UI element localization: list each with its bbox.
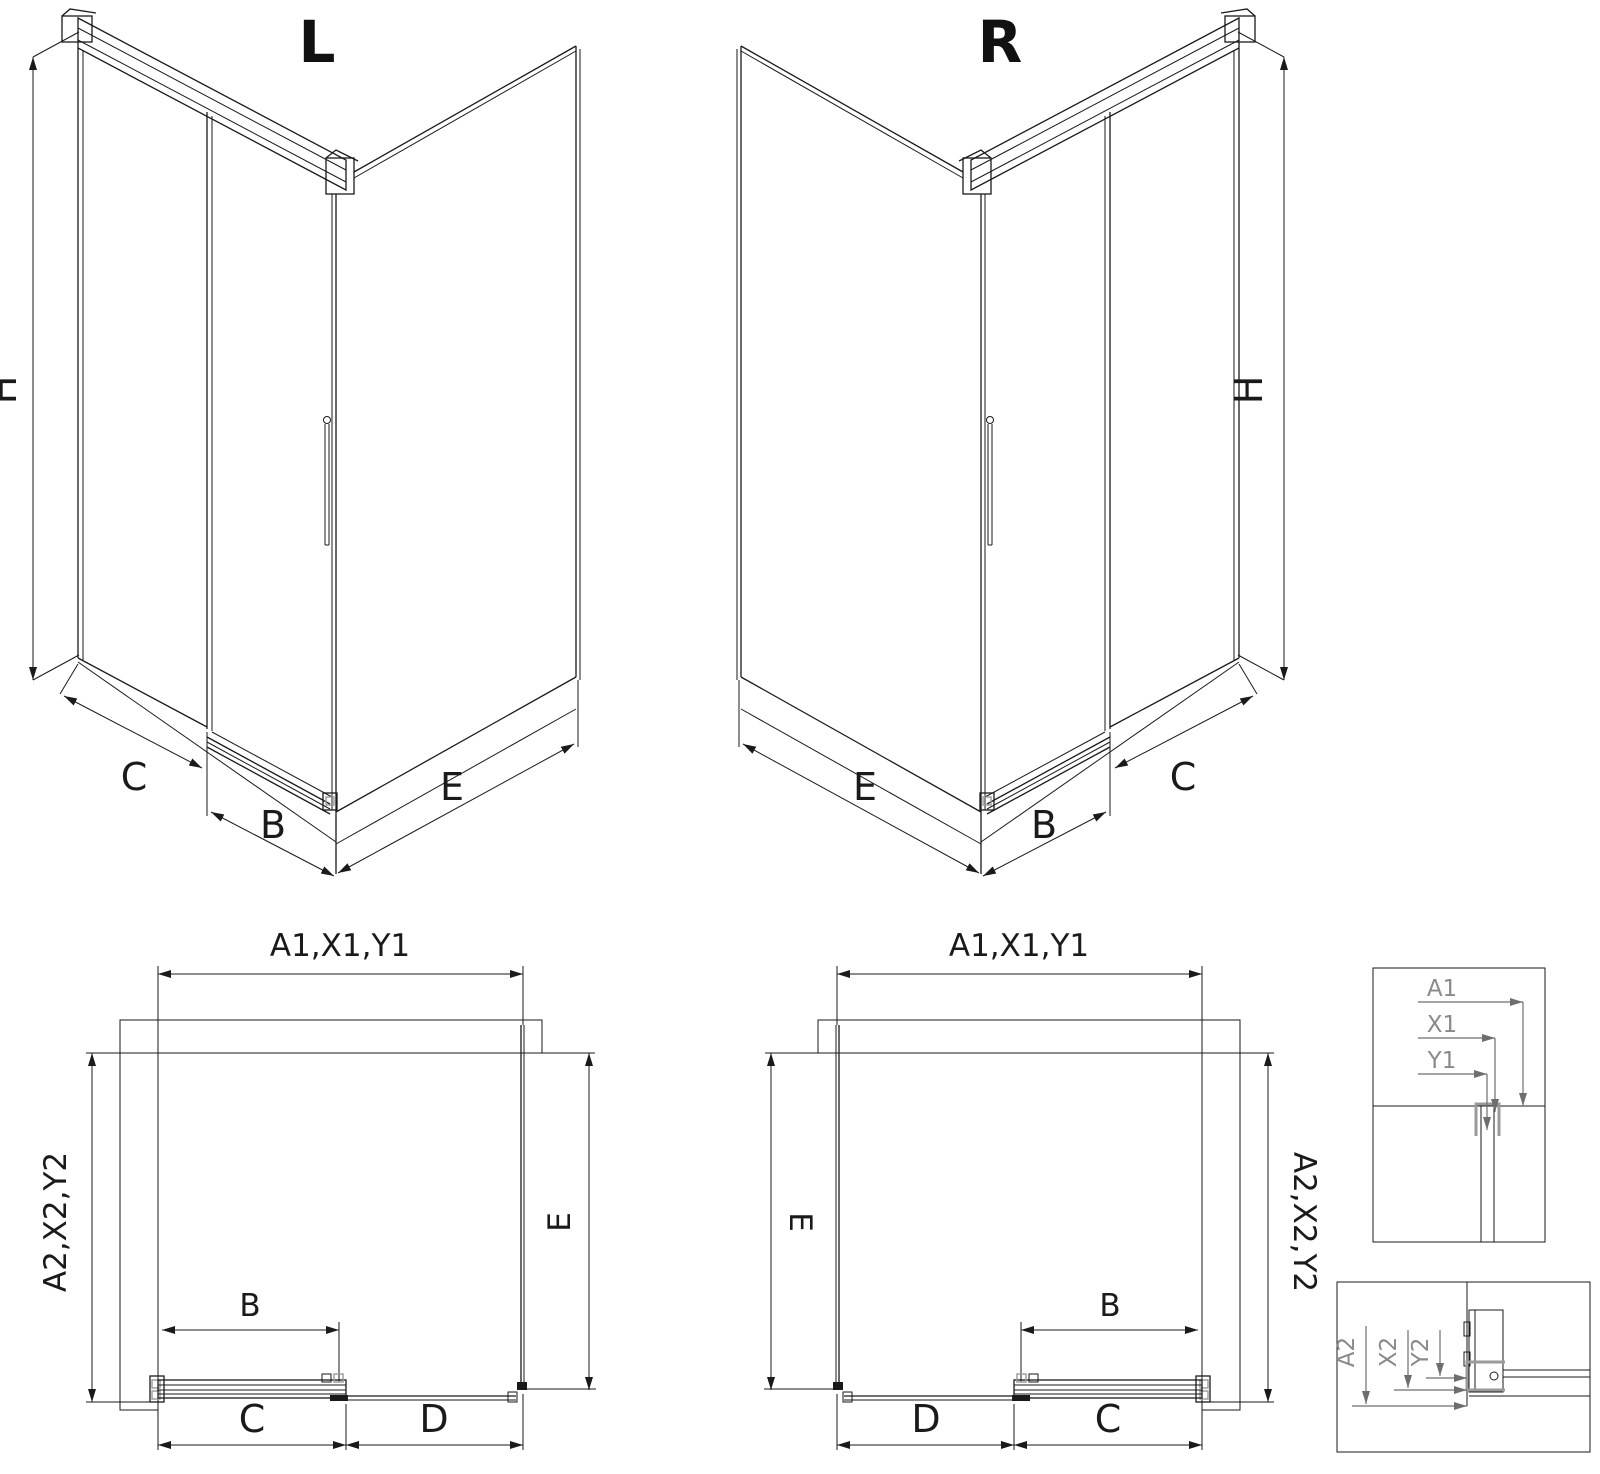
- iso-left-height-dimension: H: [0, 32, 79, 680]
- wall-right-right-plan: [1202, 1020, 1240, 1410]
- plan-left-side-panel: [517, 1025, 527, 1390]
- dim-label-a1x1y1-left: A1,X1,Y1: [270, 928, 410, 964]
- dim-label-a2x2y2-right: A2,X2,Y2: [1286, 1152, 1322, 1292]
- corner-post: [963, 158, 991, 194]
- plan-right-sliding-door-assembly: [843, 1374, 1210, 1402]
- corner-post: [326, 158, 354, 194]
- sliding-door-plan: [158, 1380, 346, 1398]
- detail-label-x1: X1: [1427, 1012, 1457, 1038]
- plan-view-right: A1,X1,Y1 A2,X2,Y2 E B: [764, 928, 1322, 1450]
- sliding-door-plan: [1014, 1380, 1202, 1398]
- detail-label-a1: A1: [1427, 976, 1457, 1002]
- dim-label-e-left: E: [440, 765, 464, 809]
- detail-bottom-y2: Y2: [1408, 1330, 1467, 1378]
- plan-right-width-dimension: A1,X1,Y1: [837, 928, 1202, 1056]
- variant-left-label: L: [299, 8, 336, 76]
- plan-left-bottom-dimensions: C D: [158, 1394, 523, 1450]
- plan-right-door-opening-dimension: B: [1021, 1288, 1198, 1382]
- plan-right-bottom-dimensions: D C: [837, 1394, 1202, 1450]
- dim-label-b-plan-left: B: [239, 1288, 260, 1324]
- detail-label-a2: A2: [1334, 1337, 1360, 1367]
- iso-view-left: L H: [0, 8, 580, 876]
- door-roller: [322, 1374, 331, 1382]
- wall-top-right-plan: [818, 1020, 1240, 1053]
- dim-label-b-right: B: [1031, 803, 1057, 847]
- dim-label-c-left: C: [121, 755, 148, 799]
- iso-left-door-handle: [324, 417, 331, 546]
- dim-label-h-left: H: [0, 376, 25, 405]
- plan-left-e-dimension: E: [521, 1053, 596, 1390]
- iso-right-height-dimension: H: [1227, 32, 1284, 680]
- door-roller: [1029, 1374, 1038, 1382]
- dim-label-a1x1y1-right: A1,X1,Y1: [949, 928, 1089, 964]
- iso-view-right: R H: [737, 8, 1284, 876]
- detail-top-a1: A1: [1418, 976, 1523, 1106]
- plan-right-e-dimension: E: [764, 1053, 839, 1390]
- plan-left-door-opening-dimension: B: [162, 1288, 339, 1382]
- iso-right-door-handle: [987, 417, 994, 546]
- dim-label-e-right: E: [853, 765, 877, 809]
- shower-enclosure-technical-drawing: L H: [0, 0, 1600, 1474]
- wall-left-left-plan: [120, 1020, 158, 1410]
- plan-left-depth-dimension: A2,X2,Y2: [38, 1053, 158, 1402]
- iso-right-glass-panels: [737, 46, 1257, 874]
- detail-label-y2: Y2: [1408, 1338, 1434, 1368]
- dim-label-c-plan-right: C: [1095, 1397, 1122, 1441]
- dim-label-c-right: C: [1170, 755, 1197, 799]
- dim-label-d-plan-left: D: [419, 1397, 448, 1441]
- dim-label-a2x2y2-left: A2,X2,Y2: [38, 1152, 74, 1292]
- door-profile-section: [1464, 1310, 1503, 1392]
- variant-right-label: R: [978, 8, 1023, 76]
- dim-label-e-plan-left: E: [542, 1212, 578, 1232]
- iso-right-bottom-dimensions: E B C: [743, 696, 1253, 876]
- plan-view-left: A1,X1,Y1 A2,X2,Y2 E B: [38, 928, 596, 1450]
- detail-view-bottom: A2 X2 Y2: [1334, 1282, 1590, 1452]
- dim-label-b-left: B: [260, 803, 286, 847]
- dim-label-e-plan-right: E: [782, 1212, 818, 1232]
- iso-left-glass-panels: [60, 46, 580, 874]
- plan-right-side-panel: [833, 1025, 843, 1390]
- detail-view-top: A1 X1 Y1: [1373, 968, 1545, 1242]
- dim-label-d-plan-right: D: [911, 1397, 940, 1441]
- dim-label-c-plan-left: C: [239, 1397, 266, 1441]
- detail-label-y1: Y1: [1427, 1048, 1457, 1074]
- wall-top-left-plan: [120, 1020, 542, 1053]
- dim-label-b-plan-right: B: [1099, 1288, 1120, 1324]
- iso-left-bottom-dimensions: C B E: [64, 696, 574, 876]
- plan-left-sliding-door-assembly: [150, 1374, 517, 1402]
- plan-left-width-dimension: A1,X1,Y1: [158, 928, 523, 1056]
- bottom-rail-bracket: [1467, 1362, 1505, 1390]
- plan-right-depth-dimension: A2,X2,Y2: [1202, 1053, 1322, 1402]
- roller-wheel: [1490, 1372, 1498, 1380]
- detail-label-x2: X2: [1376, 1337, 1402, 1367]
- diagram-canvas: L H: [0, 0, 1600, 1474]
